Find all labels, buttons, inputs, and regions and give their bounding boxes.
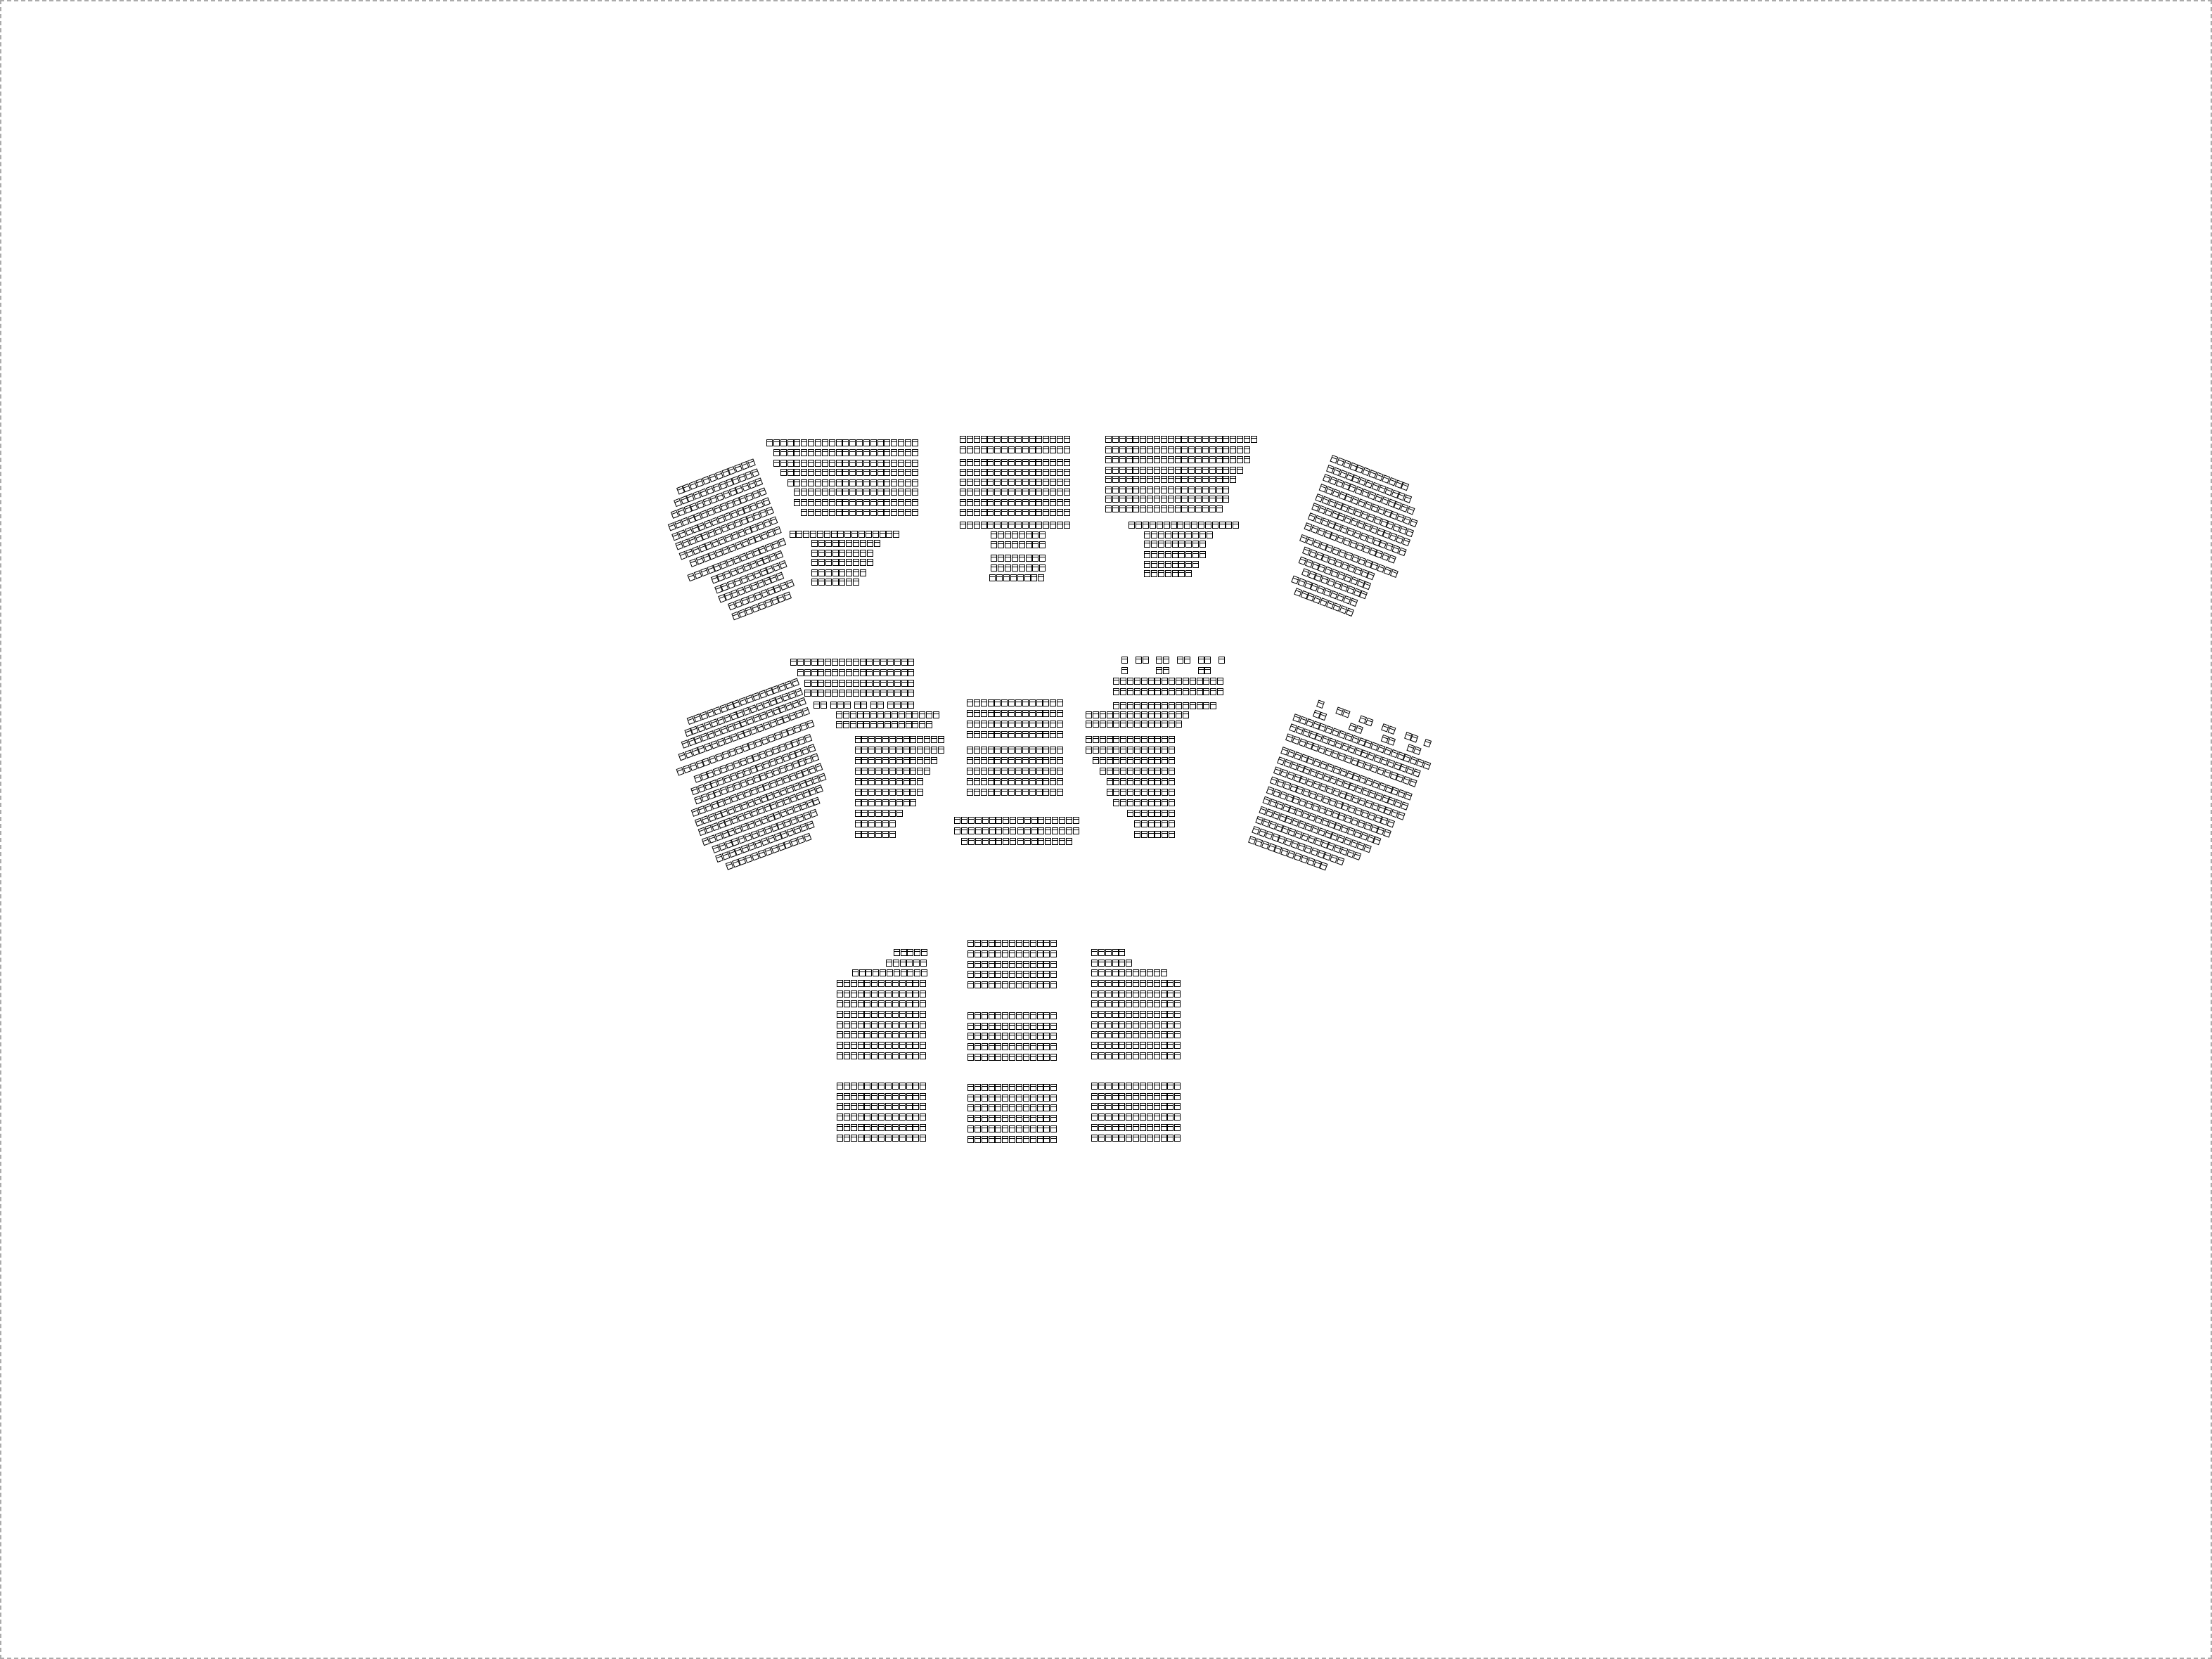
seat[interactable] [981,479,987,486]
seat[interactable] [878,1103,885,1110]
seat[interactable] [1016,1023,1022,1030]
seat[interactable] [1105,1135,1112,1142]
seat[interactable] [1175,496,1181,503]
seat[interactable] [1064,469,1070,476]
seat[interactable] [1119,486,1126,493]
seat[interactable] [1126,505,1133,512]
seat[interactable] [960,469,966,476]
seat[interactable] [1141,736,1147,743]
seat[interactable] [863,489,870,496]
seat[interactable] [887,690,894,697]
seat[interactable] [994,778,1001,785]
seat[interactable] [1009,1125,1015,1132]
seat[interactable] [1029,768,1036,775]
seat[interactable] [1178,541,1185,548]
seat[interactable] [855,736,861,743]
seat[interactable] [884,460,890,467]
seat[interactable] [967,950,974,957]
seat[interactable] [1038,827,1044,834]
seat[interactable] [906,711,912,718]
seat[interactable] [905,489,911,496]
seat[interactable] [1036,721,1043,728]
seat[interactable] [1165,551,1171,558]
seat[interactable] [1073,827,1079,834]
seat[interactable] [967,1023,974,1030]
seat[interactable] [1105,990,1112,998]
seat[interactable] [1037,1054,1043,1061]
seat[interactable] [1244,436,1250,443]
seat[interactable] [889,810,896,817]
seat[interactable] [1022,731,1029,738]
seat[interactable] [808,744,816,752]
seat[interactable] [995,940,1001,947]
seat[interactable] [766,439,773,446]
seat[interactable] [989,961,995,968]
seat[interactable] [855,768,861,775]
seat[interactable] [1174,1135,1181,1142]
seat[interactable] [1175,476,1181,483]
seat[interactable] [802,707,810,716]
seat[interactable] [853,569,859,576]
seat[interactable] [839,559,845,566]
seat[interactable] [1022,747,1029,754]
seat[interactable] [851,980,857,987]
seat[interactable] [1057,436,1063,443]
seat[interactable] [991,531,997,538]
seat[interactable] [1140,476,1146,483]
seat[interactable] [850,711,856,718]
seat[interactable] [1147,486,1153,493]
seat[interactable] [1023,1095,1029,1102]
seat[interactable] [1057,459,1063,466]
seat[interactable] [832,659,838,666]
seat[interactable] [864,1042,870,1049]
seat[interactable] [875,799,882,806]
seat[interactable] [987,509,994,516]
seat[interactable] [1064,436,1070,443]
seat[interactable] [1105,1031,1112,1038]
seat[interactable] [1043,1023,1050,1030]
seat[interactable] [1188,496,1195,503]
seat[interactable] [1119,1021,1125,1028]
seat[interactable] [849,499,856,506]
seat[interactable] [832,559,839,566]
seat[interactable] [1207,531,1213,538]
seat[interactable] [899,1052,906,1059]
seat[interactable] [1155,768,1161,775]
seat[interactable] [1169,778,1175,785]
seat[interactable] [910,799,916,806]
seat[interactable] [1105,1093,1112,1100]
seat[interactable] [901,659,908,666]
seat[interactable] [1093,711,1099,718]
seat[interactable] [1045,817,1051,824]
seat[interactable] [1176,721,1182,728]
seat[interactable] [1023,950,1029,957]
seat[interactable] [1162,778,1168,785]
seat[interactable] [1050,1023,1057,1030]
seat[interactable] [967,1095,974,1102]
seat[interactable] [1133,1113,1139,1121]
seat[interactable] [1126,1083,1132,1090]
seat[interactable] [863,439,870,446]
seat[interactable] [886,960,892,967]
seat[interactable] [982,1054,988,1061]
seat[interactable] [892,1113,899,1121]
seat[interactable] [815,763,823,771]
seat[interactable] [1167,1103,1173,1110]
seat[interactable] [889,747,896,754]
seat[interactable] [982,961,988,968]
seat[interactable] [892,1021,899,1028]
seat[interactable] [868,747,875,754]
seat[interactable] [967,1136,974,1143]
seat[interactable] [1032,531,1039,538]
seat[interactable] [1209,446,1216,453]
seat[interactable] [1183,711,1189,718]
seat[interactable] [982,827,989,834]
seat[interactable] [798,697,806,706]
seat[interactable] [846,690,852,697]
seat[interactable] [837,1011,843,1018]
seat[interactable] [1151,570,1157,577]
seat[interactable] [1210,688,1216,695]
seat[interactable] [877,702,884,709]
seat[interactable] [1113,721,1119,728]
seat[interactable] [907,969,913,976]
seat[interactable] [1184,657,1190,664]
seat[interactable] [967,699,973,706]
seat[interactable] [1016,971,1022,978]
seat[interactable] [860,559,866,566]
seat[interactable] [987,459,994,466]
seat[interactable] [1050,459,1056,466]
seat[interactable] [1120,736,1126,743]
seat[interactable] [1161,436,1167,443]
seat[interactable] [974,789,980,796]
seat[interactable] [1147,467,1153,474]
seat[interactable] [1030,1023,1036,1030]
seat[interactable] [1140,1113,1146,1121]
seat[interactable] [868,831,875,838]
seat[interactable] [853,579,859,586]
seat[interactable] [880,659,887,666]
seat[interactable] [1112,446,1119,453]
seat[interactable] [1005,564,1011,572]
seat[interactable] [975,1095,981,1102]
seat[interactable] [856,449,863,456]
seat[interactable] [1154,1135,1160,1142]
seat[interactable] [967,1054,974,1061]
seat[interactable] [989,950,995,957]
seat[interactable] [1188,436,1195,443]
seat[interactable] [906,1113,913,1121]
seat[interactable] [1105,1011,1112,1018]
seat[interactable] [1162,799,1168,806]
seat[interactable] [906,1042,913,1049]
seat[interactable] [1100,711,1106,718]
seat[interactable] [868,799,875,806]
seat[interactable] [818,669,824,676]
seat[interactable] [1036,489,1042,496]
seat[interactable] [1174,1042,1181,1049]
seat[interactable] [920,990,926,998]
seat[interactable] [861,747,868,754]
seat[interactable] [870,721,877,728]
seat[interactable] [880,690,887,697]
seat[interactable] [967,789,973,796]
seat[interactable] [854,702,861,709]
seat[interactable] [1119,496,1126,503]
seat[interactable] [790,531,796,538]
seat[interactable] [920,1000,926,1007]
seat[interactable] [815,449,821,456]
seat[interactable] [1098,969,1105,976]
seat[interactable] [1151,541,1157,548]
seat[interactable] [1202,446,1209,453]
seat[interactable] [1008,436,1015,443]
seat[interactable] [1002,1033,1008,1040]
seat[interactable] [1140,990,1146,998]
seat[interactable] [794,439,800,446]
seat[interactable] [1119,1000,1125,1007]
seat[interactable] [1050,1136,1057,1143]
seat[interactable] [975,940,981,947]
seat[interactable] [967,747,973,754]
seat[interactable] [1105,505,1112,512]
seat[interactable] [1015,509,1022,516]
seat[interactable] [851,1031,857,1038]
seat[interactable] [913,1052,919,1059]
seat[interactable] [1008,509,1015,516]
seat[interactable] [885,1093,892,1100]
seat[interactable] [1091,1042,1098,1049]
seat[interactable] [1057,710,1063,717]
seat[interactable] [1050,1084,1057,1091]
seat[interactable] [967,768,973,775]
seat[interactable] [1168,456,1174,463]
seat[interactable] [1098,980,1105,987]
seat[interactable] [1141,768,1147,775]
seat[interactable] [849,460,856,467]
seat[interactable] [1192,551,1199,558]
seat[interactable] [1091,1011,1098,1018]
seat[interactable] [1091,1031,1098,1038]
seat[interactable] [1126,1124,1132,1131]
seat[interactable] [1140,1083,1146,1090]
seat[interactable] [1188,446,1195,453]
seat[interactable] [1176,688,1182,695]
seat[interactable] [1409,518,1417,527]
seat[interactable] [877,489,884,496]
seat[interactable] [1176,678,1182,685]
seat[interactable] [1126,1052,1132,1059]
seat[interactable] [815,489,821,496]
seat[interactable] [846,669,852,676]
seat[interactable] [1032,555,1039,562]
seat[interactable] [1147,969,1153,976]
seat[interactable] [1024,838,1031,845]
seat[interactable] [837,1042,843,1049]
seat[interactable] [994,446,1001,453]
seat[interactable] [913,960,920,967]
seat[interactable] [967,710,973,717]
seat[interactable] [1015,778,1022,785]
seat[interactable] [892,1011,899,1018]
seat[interactable] [863,469,870,476]
seat[interactable] [1202,476,1209,483]
seat[interactable] [780,469,787,476]
seat[interactable] [836,460,842,467]
seat[interactable] [1223,436,1229,443]
seat[interactable] [871,1031,877,1038]
seat[interactable] [1175,467,1181,474]
seat[interactable] [1105,1000,1112,1007]
seat[interactable] [837,1113,843,1121]
seat[interactable] [860,550,866,557]
seat[interactable] [974,778,980,785]
seat[interactable] [877,460,884,467]
seat[interactable] [844,1011,850,1018]
seat[interactable] [1216,476,1223,483]
seat[interactable] [1066,838,1072,845]
seat[interactable] [1127,711,1133,718]
seat[interactable] [844,990,850,998]
seat[interactable] [1002,971,1008,978]
seat[interactable] [1155,778,1161,785]
seat[interactable] [1164,522,1170,529]
seat[interactable] [842,509,849,516]
seat[interactable] [1050,778,1056,785]
seat[interactable] [825,669,831,676]
seat[interactable] [989,817,996,824]
seat[interactable] [968,817,975,824]
seat[interactable] [1112,990,1119,998]
seat[interactable] [1086,711,1092,718]
seat[interactable] [1037,1012,1043,1019]
seat[interactable] [855,747,861,754]
seat[interactable] [875,768,882,775]
seat[interactable] [1037,1104,1043,1111]
seat[interactable] [877,721,884,728]
seat[interactable] [1147,476,1153,483]
seat[interactable] [899,1113,906,1121]
seat[interactable] [1169,702,1175,709]
seat[interactable] [1175,456,1181,463]
seat[interactable] [1161,1103,1167,1110]
seat[interactable] [1057,699,1063,706]
seat[interactable] [967,961,974,968]
seat[interactable] [908,702,914,709]
seat[interactable] [891,479,897,486]
seat[interactable] [889,820,896,827]
seat[interactable] [987,436,994,443]
seat[interactable] [1148,702,1155,709]
seat[interactable] [1197,702,1203,709]
seat[interactable] [1022,509,1029,516]
seat[interactable] [1216,486,1223,493]
seat[interactable] [871,1042,877,1049]
seat[interactable] [1218,657,1225,664]
seat[interactable] [1141,820,1147,827]
seat[interactable] [1205,522,1211,529]
seat[interactable] [884,439,890,446]
seat[interactable] [870,449,877,456]
seat[interactable] [810,531,816,538]
seat[interactable] [1091,1021,1098,1028]
seat[interactable] [1037,1043,1043,1050]
seat[interactable] [1002,1054,1008,1061]
seat[interactable] [1161,446,1167,453]
seat[interactable] [837,1052,843,1059]
seat[interactable] [1390,569,1398,578]
seat[interactable] [853,680,859,687]
seat[interactable] [1002,961,1008,968]
seat[interactable] [1107,757,1113,764]
seat[interactable] [857,721,863,728]
seat[interactable] [1098,960,1105,967]
seat[interactable] [1188,467,1195,474]
seat[interactable] [1052,838,1058,845]
seat[interactable] [1107,778,1113,785]
seat[interactable] [913,1011,919,1018]
seat[interactable] [1016,1125,1022,1132]
seat[interactable] [989,1104,995,1111]
seat[interactable] [1162,688,1168,695]
seat[interactable] [844,702,851,709]
seat[interactable] [844,1135,850,1142]
seat[interactable] [892,990,899,998]
seat[interactable] [1030,1084,1036,1091]
seat[interactable] [913,1135,919,1142]
seat[interactable] [1126,476,1133,483]
seat[interactable] [858,980,864,987]
seat[interactable] [829,509,835,516]
seat[interactable] [1195,436,1202,443]
seat[interactable] [855,810,861,817]
seat[interactable] [1091,949,1098,956]
seat[interactable] [1126,486,1133,493]
seat[interactable] [842,469,849,476]
seat[interactable] [988,699,994,706]
seat[interactable] [920,1031,926,1038]
seat[interactable] [1383,829,1391,837]
seat[interactable] [1091,980,1098,987]
seat[interactable] [1064,522,1070,529]
seat[interactable] [885,1103,892,1110]
seat[interactable] [811,540,818,547]
seat[interactable] [920,1052,926,1059]
seat[interactable] [1050,1033,1057,1040]
seat[interactable] [773,460,780,467]
seat[interactable] [801,509,807,516]
seat[interactable] [1016,1043,1022,1050]
seat[interactable] [1057,469,1063,476]
seat[interactable] [924,747,930,754]
seat[interactable] [1167,980,1173,987]
seat[interactable] [1198,667,1204,674]
seat[interactable] [913,1103,919,1110]
seat[interactable] [1167,1124,1173,1131]
seat[interactable] [1050,1104,1057,1111]
seat[interactable] [837,980,843,987]
seat[interactable] [1008,778,1015,785]
seat[interactable] [1190,688,1196,695]
seat[interactable] [832,680,838,687]
seat[interactable] [974,459,980,466]
seat[interactable] [1133,436,1139,443]
seat[interactable] [1167,1042,1173,1049]
